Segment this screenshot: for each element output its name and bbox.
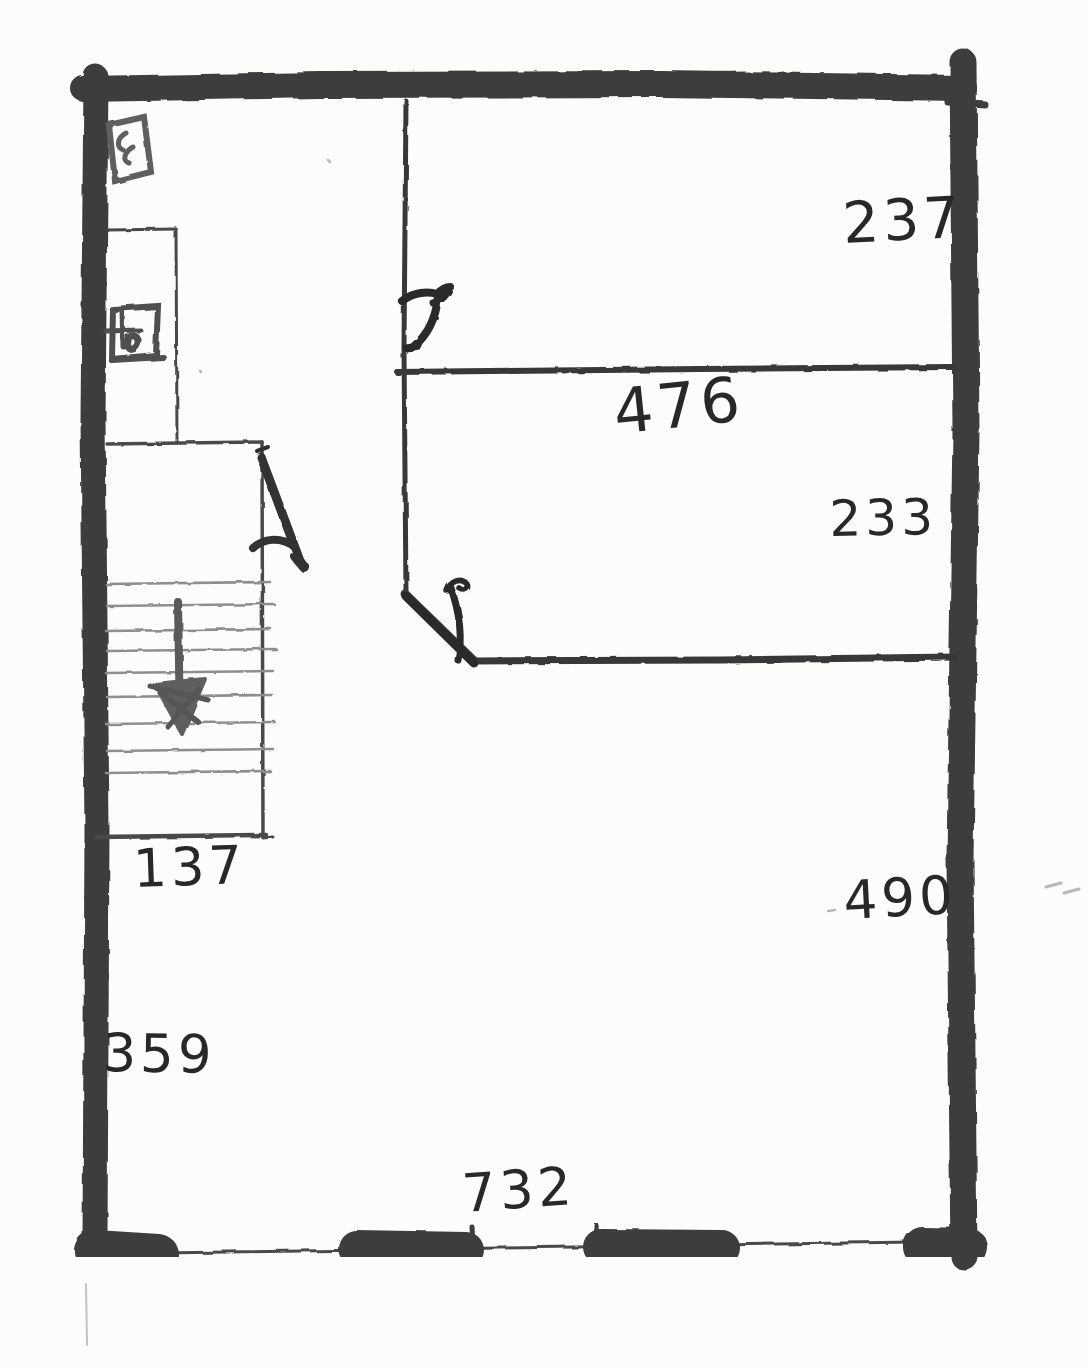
dimension-left-wall: 359 [102,1022,216,1085]
stair-tread [107,749,273,751]
bottom-pier-corner-right [923,1247,968,1248]
bottom-pier-2 [601,1247,722,1248]
dimension-staircase-width: 137 [132,834,247,899]
closet-partition-right [176,229,177,443]
pier-tick-2 [596,1225,597,1243]
pencil-smudges [86,160,1079,1345]
dimension-room-top-right: 237 [841,184,965,256]
dimension-room-mid-right: 233 [829,488,937,548]
outlet-symbol-icon [106,306,163,360]
stair-tread [106,582,270,584]
bottom-pier-1 [356,1248,466,1250]
panel-symbol-icon [109,117,151,181]
outer-wall-left [93,77,97,1239]
bottom-wall [95,1225,968,1255]
stair-tread [106,722,275,724]
dimension-bottom-width: 732 [460,1155,577,1224]
bottom-sill-line [98,1242,915,1254]
bottom-pier-corner-left [95,1251,158,1255]
interior-wall-room-233-490 [474,657,954,661]
floor-plan-sketch: 237 476 233 490 137 359 732 [0,0,1088,1368]
pier-tick-1 [472,1227,473,1245]
stair-partition-right [262,442,263,837]
dimension-hall-width: 476 [610,362,747,448]
stair-bottom-tick [263,837,273,838]
stair-tread [107,604,274,606]
dimension-room-bottom-right: 490 [842,864,958,931]
door-swing-upper-icon [402,287,450,348]
outer-wall-top [84,57,985,105]
stair-tread [106,771,270,773]
stair-tread [106,629,271,631]
staircase [106,582,276,773]
stair-tread [106,671,273,673]
stair-tread [107,649,276,651]
closet-partition-top [107,229,176,230]
stair-partition-top [107,442,262,444]
stairs-down-arrow-icon [150,602,208,734]
